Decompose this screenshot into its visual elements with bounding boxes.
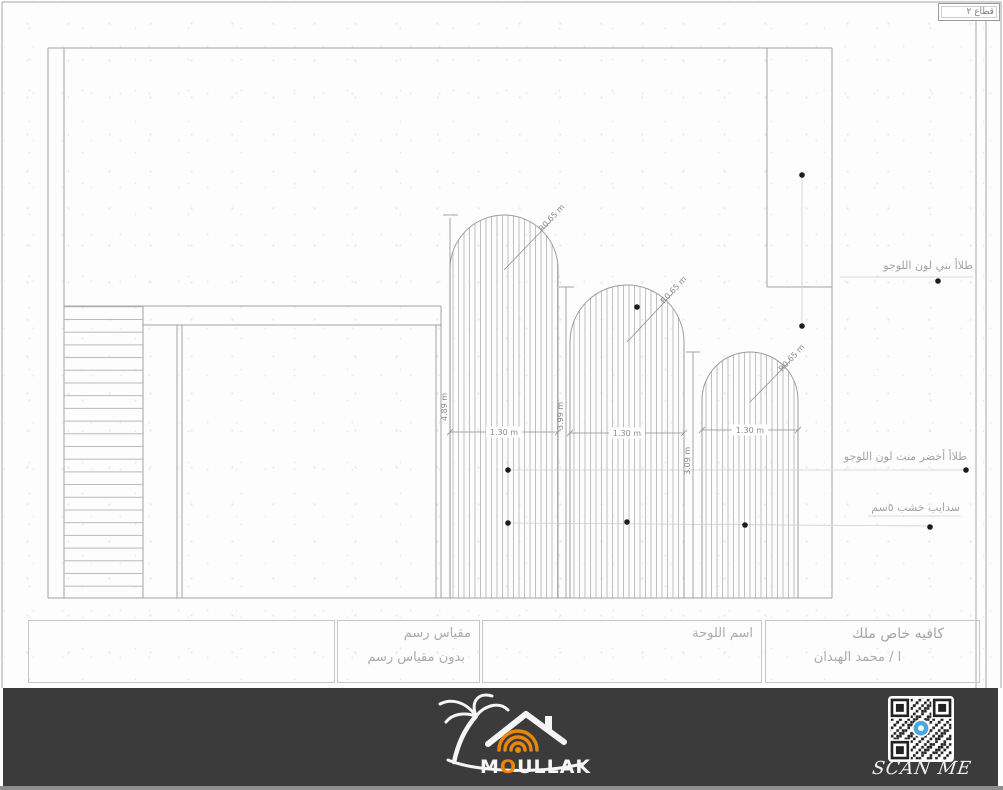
dim-height-2: 3.99 m (556, 402, 565, 430)
brand-wordmark: MOULLAK (480, 756, 591, 778)
brand-logo: MOULLAK (418, 692, 608, 780)
dim-width-2: 1.30 m (613, 429, 641, 438)
title-block-scale-cell: مقياس رسم بدون مقياس رسم (337, 620, 480, 683)
project-title: كافيه خاص ملك (766, 621, 979, 642)
bottom-edge-strip (0, 786, 1003, 790)
side-slat-panel (64, 306, 143, 598)
section-label-box: قطاع ٢ (938, 3, 1000, 21)
drawing-sheet: 1.30 m 1.30 m 1.30 m 4.89 m 3.99 m 3.09 … (0, 0, 1003, 790)
qr-code (886, 696, 956, 762)
dim-width-3: 1.30 m (736, 426, 764, 435)
sheet-name-label: اسم اللوحة (483, 621, 761, 641)
title-block-sheet-name-cell: اسم اللوحة (482, 620, 762, 683)
annotation-green-paint: طلاأ أخضر منت لون اللوجو (844, 450, 967, 463)
arched-panels (450, 215, 798, 598)
arch-panel-3 (702, 352, 798, 598)
dim-radius-2: R0.65 m (659, 274, 689, 305)
annotation-brown-paint: طلاأ بني لون اللوجو (883, 259, 973, 272)
annotation-wood-slats: سدايب خشب ٥سم (871, 501, 960, 514)
elevation-drawing: 1.30 m 1.30 m 1.30 m 4.89 m 3.99 m 3.09 … (0, 0, 1003, 688)
project-owner: ا / محمد الهبدان (766, 642, 979, 665)
section-label: قطاع ٢ (966, 7, 994, 17)
arch-panel-1 (450, 215, 558, 598)
title-block-empty-cell (28, 620, 335, 683)
arch-panel-2 (570, 285, 684, 598)
dim-radius-1: R0.65 m (537, 202, 567, 233)
dim-width-1: 1.30 m (490, 428, 518, 437)
dim-radius-3: R0.65 m (777, 342, 807, 373)
wifi-icon (499, 731, 537, 753)
scan-me-label: SCAN ME (871, 758, 974, 779)
title-block-project-cell: كافيه خاص ملك ا / محمد الهبدان (765, 620, 980, 683)
scale-label: مقياس رسم (338, 621, 479, 641)
dim-height-1: 4.89 m (440, 393, 449, 421)
footer-band: MOULLAK (3, 688, 998, 786)
dim-height-3: 3.09 m (683, 447, 692, 475)
scale-value: بدون مقياس رسم (338, 641, 479, 665)
